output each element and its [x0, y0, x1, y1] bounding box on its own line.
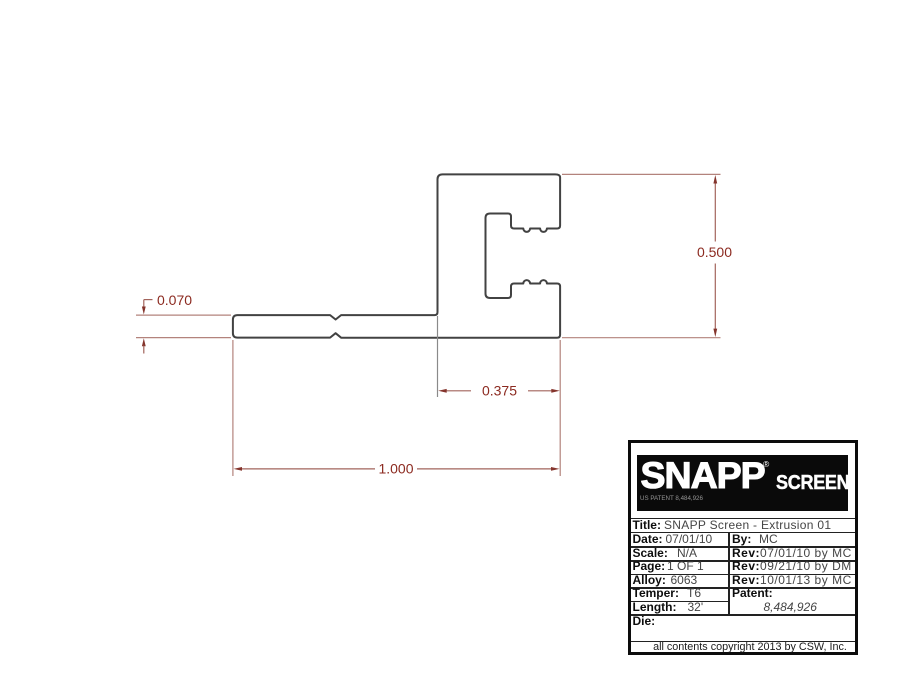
svg-text:0.500: 0.500 [697, 244, 732, 260]
svg-text:0.070: 0.070 [157, 292, 192, 308]
svg-text:1.000: 1.000 [378, 461, 413, 477]
svg-text:0.375: 0.375 [482, 383, 517, 399]
